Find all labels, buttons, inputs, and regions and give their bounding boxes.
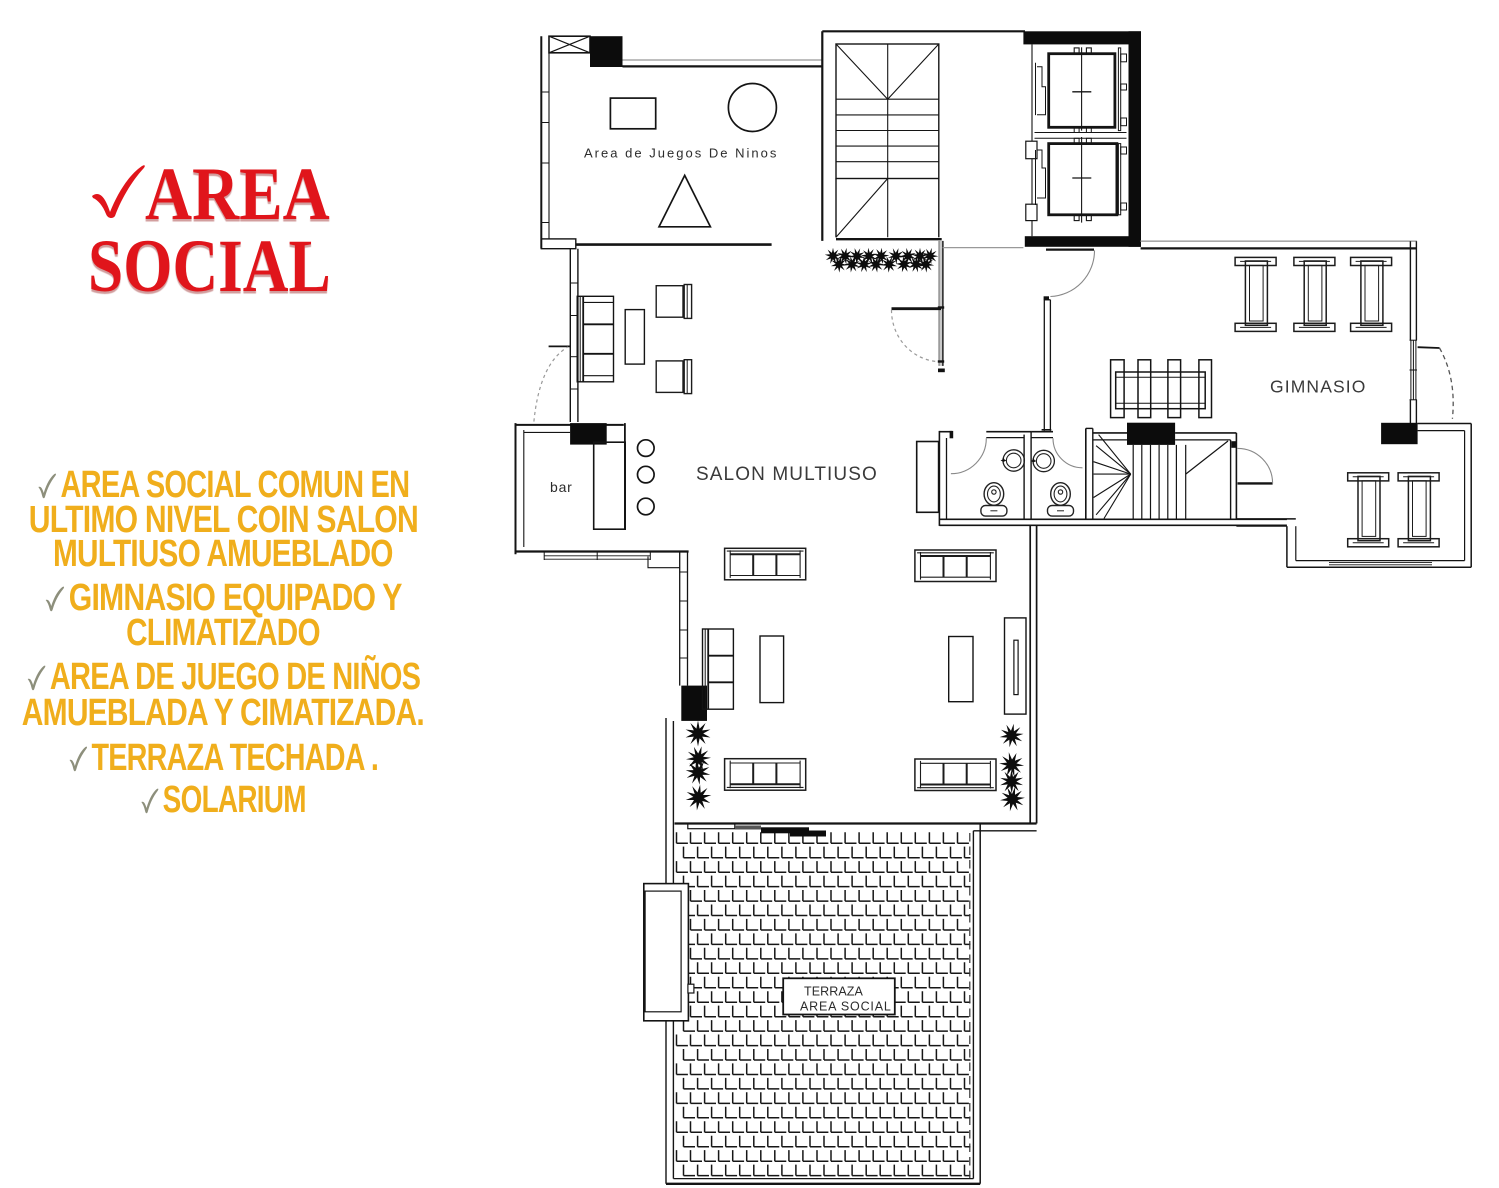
svg-text:SALON MULTIUSO: SALON MULTIUSO: [696, 464, 880, 485]
svg-text:AREA SOCIAL: AREA SOCIAL: [800, 1000, 892, 1014]
svg-text:GIMNASIO: GIMNASIO: [1270, 377, 1368, 397]
svg-text:Area de Juegos De Ninos: Area de Juegos De Ninos: [584, 146, 778, 161]
svg-text:bar: bar: [550, 479, 573, 495]
svg-text:TERRAZA: TERRAZA: [804, 985, 864, 999]
